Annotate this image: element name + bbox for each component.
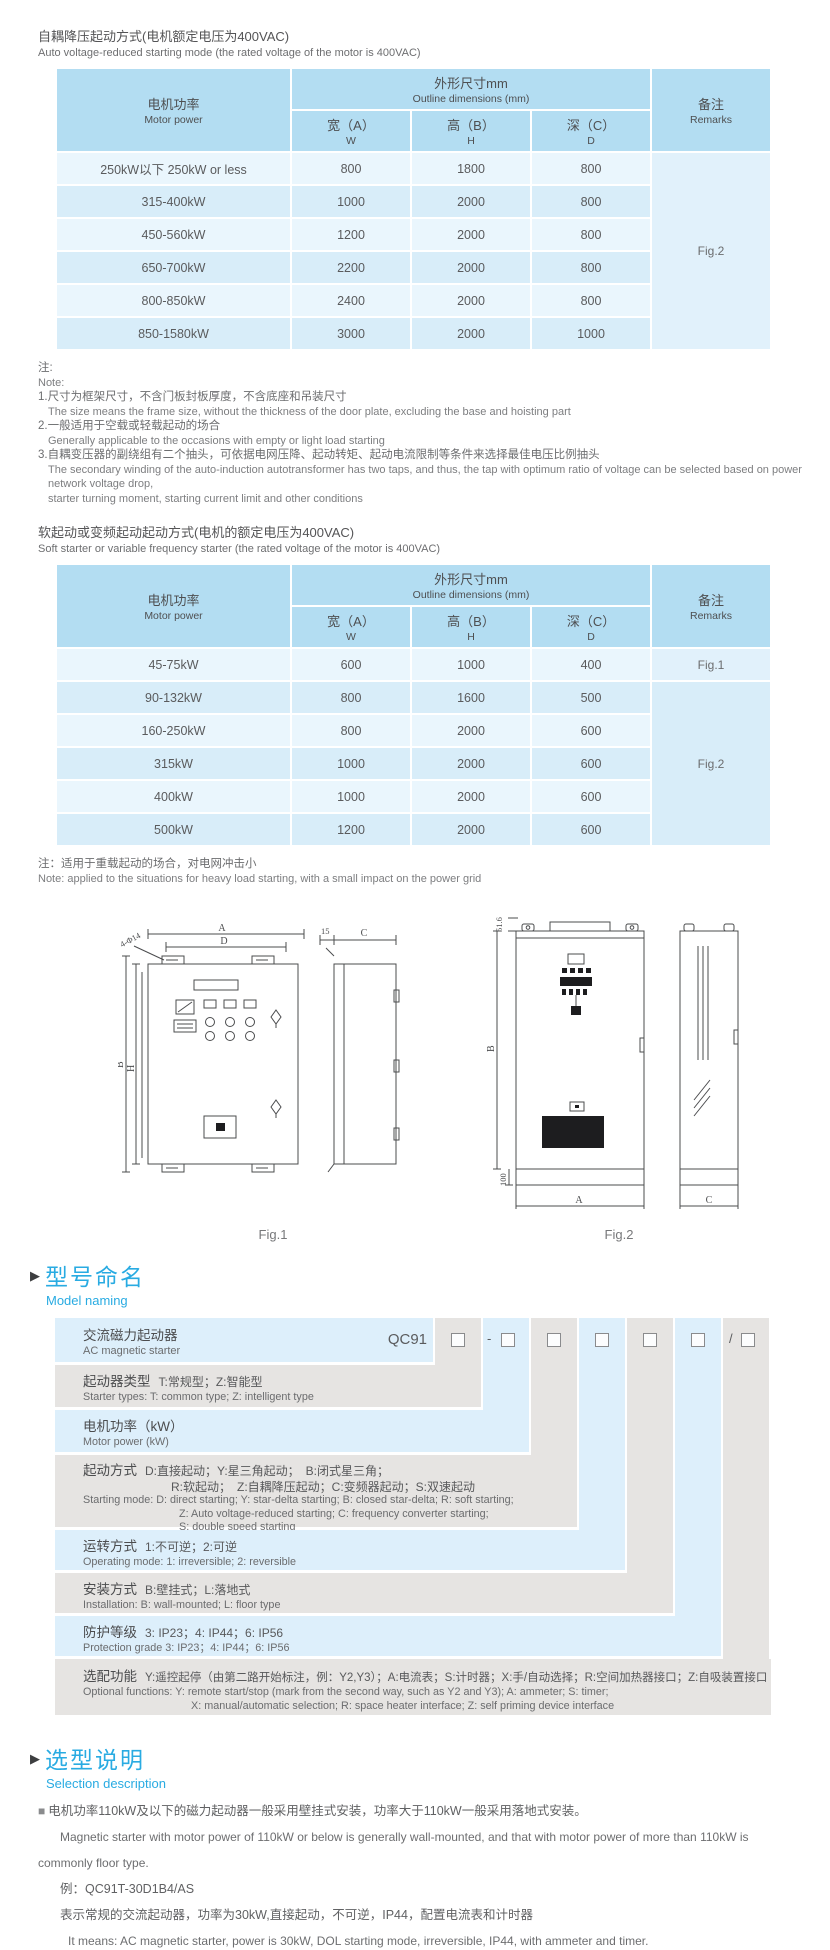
cell-w: 1200 <box>291 218 411 251</box>
cell-d: 500 <box>531 681 651 714</box>
naming-box <box>643 1333 657 1347</box>
table-header-row: 电机功率 Motor power 外形尺寸mm Outline dimensio… <box>56 68 771 110</box>
cell-d: 800 <box>531 251 651 284</box>
note-line: 2.一般适用于空载或轻载起动的场合 <box>38 419 830 434</box>
cell-power: 500kW <box>56 813 291 846</box>
cell-d: 1000 <box>531 317 651 350</box>
figure-1: A D 4-Φ14 <box>118 920 428 1242</box>
cell-d: 800 <box>531 152 651 185</box>
note-line: 注: <box>38 361 830 376</box>
fig2-drawing: 51.6 B 100 <box>484 910 754 1220</box>
header-width: 宽（A）W <box>291 606 411 648</box>
cell-d: 600 <box>531 747 651 780</box>
header-motor-power: 电机功率 Motor power <box>56 564 291 648</box>
header-outline-dimensions: 外形尺寸mm Outline dimensions (mm) <box>291 68 651 110</box>
cell-d: 400 <box>531 648 651 681</box>
section1-heading: 自耦降压起动方式(电机额定电压为400VAC) Auto voltage-red… <box>38 26 830 59</box>
cell-power: 800-850kW <box>56 284 291 317</box>
header-width: 宽（A）W <box>291 110 411 152</box>
cell-h: 2000 <box>411 185 531 218</box>
note-line: 注：适用于重载起动的场合，对电网冲击小 <box>38 857 830 872</box>
cell-power: 160-250kW <box>56 714 291 747</box>
selection-paragraph: Magnetic starter with motor power of 110… <box>38 1829 830 1846</box>
naming-box <box>547 1333 561 1347</box>
fig2-dim-100: 100 <box>498 1173 508 1186</box>
cell-w: 2200 <box>291 251 411 284</box>
cell-d: 800 <box>531 218 651 251</box>
cell-d: 800 <box>531 284 651 317</box>
fig2-label: Fig.2 <box>484 1227 754 1242</box>
cell-remark: Fig.1 <box>651 648 771 681</box>
cell-d: 600 <box>531 813 651 846</box>
fig1-dim-c: C <box>361 928 368 939</box>
catalog-page: { "colors": { "accent_blue": "#29abe2", … <box>0 0 830 1797</box>
naming-row-starting-mode: 起动方式D:直接起动；Y:星三角起动； B:闭式星三角； R:软起动； Z:自耦… <box>55 1455 577 1527</box>
header-height: 高（B）H <box>411 110 531 152</box>
naming-box <box>595 1333 609 1347</box>
fig1-dim-b: B <box>118 1061 126 1068</box>
naming-box <box>451 1333 465 1347</box>
header-depth: 深（C）D <box>531 110 651 152</box>
naming-box-prefix: - <box>487 1331 491 1346</box>
note-line: Note: <box>38 376 830 391</box>
cell-power: 250kW以下 250kW or less <box>56 152 291 185</box>
selection-paragraph: ■电机功率110kW及以下的磁力起动器一般采用壁挂式安装，功率大于110kW一般… <box>38 1803 830 1820</box>
cell-w: 1000 <box>291 747 411 780</box>
cell-h: 2000 <box>411 284 531 317</box>
cell-w: 800 <box>291 714 411 747</box>
table-row: 90-132kW 800 1600 500 Fig.2 <box>56 681 771 714</box>
cell-w: 2400 <box>291 284 411 317</box>
cell-h: 1600 <box>411 681 531 714</box>
note-line: 3.自耦变压器的副绕组有二个抽头，可依据电网压降、起动转矩、起动电流限制等条件来… <box>38 448 830 463</box>
cell-w: 1200 <box>291 813 411 846</box>
naming-row-optional-functions: 选配功能Y:遥控起停（由第二路开始标注，例：Y2,Y3）；A:电流表；S:计时器… <box>55 1659 771 1715</box>
figure-2: 51.6 B 100 <box>484 910 754 1242</box>
figures-area: A D 4-Φ14 <box>118 910 830 1242</box>
table1-notes: 注: Note: 1.尺寸为框架尺寸，不含门板封板厚度，不含底座和吊装尺寸 Th… <box>38 361 830 506</box>
cell-h: 2000 <box>411 780 531 813</box>
note-line: Note: applied to the situations for heav… <box>38 872 830 887</box>
note-line: The size means the frame size, without t… <box>38 405 830 420</box>
auto-voltage-table: 电机功率 Motor power 外形尺寸mm Outline dimensio… <box>55 67 772 351</box>
selection-body: ■电机功率110kW及以下的磁力起动器一般采用壁挂式安装，功率大于110kW一般… <box>38 1803 830 1950</box>
naming-row-protection-grade: 防护等级3: IP23；4: IP44；6: IP56 Protection g… <box>55 1616 721 1656</box>
table-header-row: 电机功率 Motor power 外形尺寸mm Outline dimensio… <box>56 564 771 606</box>
cell-w: 1000 <box>291 185 411 218</box>
cell-d: 600 <box>531 714 651 747</box>
naming-row-operating-mode: 运转方式1:不可逆；2:可逆 Operating mode: 1: irreve… <box>55 1530 625 1570</box>
section1-title-en: Auto voltage-reduced starting mode (the … <box>38 47 830 59</box>
model-code: QC91 <box>355 1318 427 1362</box>
cell-h: 2000 <box>411 747 531 780</box>
note-line: starter turning moment, starting current… <box>38 492 830 507</box>
section2-heading: 软起动或变频起动起动方式(电机的额定电压为400VAC) Soft starte… <box>38 522 830 555</box>
model-naming-heading: ▶型号命名 Model naming <box>30 1258 830 1308</box>
header-remarks: 备注 Remarks <box>651 564 771 648</box>
cell-power: 315kW <box>56 747 291 780</box>
fig1-drawing: A D 4-Φ14 <box>118 920 428 1220</box>
cell-power: 45-75kW <box>56 648 291 681</box>
note-line: Generally applicable to the occasions wi… <box>38 434 830 449</box>
model-naming-title-zh: 型号命名 <box>45 1264 145 1290</box>
cell-d: 800 <box>531 185 651 218</box>
selection-example: 例：QC91T-30D1B4/AS <box>38 1881 830 1898</box>
cell-h: 2000 <box>411 813 531 846</box>
naming-column-strip <box>723 1318 769 1715</box>
fig2-dim-a: A <box>575 1195 583 1206</box>
table-row: 45-75kW 600 1000 400 Fig.1 <box>56 648 771 681</box>
cell-power: 450-560kW <box>56 218 291 251</box>
cell-power: 850-1580kW <box>56 317 291 350</box>
header-height: 高（B）H <box>411 606 531 648</box>
header-motor-power: 电机功率 Motor power <box>56 68 291 152</box>
fig1-dim-h: H <box>126 1065 137 1072</box>
header-outline-dimensions: 外形尺寸mm Outline dimensions (mm) <box>291 564 651 606</box>
cell-h: 1000 <box>411 648 531 681</box>
fig1-label: Fig.1 <box>118 1227 428 1242</box>
cell-power: 650-700kW <box>56 251 291 284</box>
section2-title-zh: 软起动或变频起动起动方式(电机的额定电压为400VAC) <box>38 522 830 541</box>
section2-title-en: Soft starter or variable frequency start… <box>38 543 830 555</box>
selection-paragraph: It means: AC magnetic starter, power is … <box>38 1933 830 1950</box>
cell-h: 2000 <box>411 218 531 251</box>
naming-row-starter-type: 起动器类型T:常规型；Z:智能型 Starter types: T: commo… <box>55 1365 481 1407</box>
cell-remark: Fig.2 <box>651 152 771 350</box>
table2-notes: 注：适用于重载起动的场合，对电网冲击小 Note: applied to the… <box>38 857 830 886</box>
soft-starter-table: 电机功率 Motor power 外形尺寸mm Outline dimensio… <box>55 563 772 847</box>
selection-paragraph: commonly floor type. <box>38 1855 830 1872</box>
header-remarks: 备注 Remarks <box>651 68 771 152</box>
triangle-marker-icon: ▶ <box>30 1751 40 1766</box>
selection-title-en: Selection description <box>46 1776 830 1791</box>
cell-w: 3000 <box>291 317 411 350</box>
cell-power: 90-132kW <box>56 681 291 714</box>
cell-w: 600 <box>291 648 411 681</box>
selection-heading: ▶选型说明 Selection description <box>30 1741 830 1791</box>
fig1-holes-label: 4-Φ14 <box>118 930 143 949</box>
cell-w: 1000 <box>291 780 411 813</box>
fig1-dim-a: A <box>218 923 226 934</box>
cell-w: 800 <box>291 152 411 185</box>
naming-row-installation: 安装方式B:壁挂式；L:落地式 Installation: B: wall-mo… <box>55 1573 673 1613</box>
naming-box-prefix: / <box>729 1331 733 1346</box>
cell-power: 315-400kW <box>56 185 291 218</box>
note-line: The secondary winding of the auto-induct… <box>38 463 830 492</box>
table-row: 250kW以下 250kW or less 800 1800 800 Fig.2 <box>56 152 771 185</box>
naming-box <box>741 1333 755 1347</box>
triangle-marker-icon: ▶ <box>30 1268 40 1283</box>
header-depth: 深（C）D <box>531 606 651 648</box>
cell-h: 1800 <box>411 152 531 185</box>
fig2-dim-b: B <box>486 1045 497 1052</box>
cell-w: 800 <box>291 681 411 714</box>
naming-row-motor-power: 电机功率（kW） Motor power (kW) <box>55 1410 529 1452</box>
model-naming-title-en: Model naming <box>46 1293 830 1308</box>
cell-remark: Fig.2 <box>651 681 771 846</box>
selection-paragraph: 表示常规的交流起动器，功率为30kW,直接起动，不可逆，IP44，配置电流表和计… <box>38 1907 830 1924</box>
note-line: 1.尺寸为框架尺寸，不含门板封板厚度，不含底座和吊装尺寸 <box>38 390 830 405</box>
fig1-dim-d: D <box>220 936 227 947</box>
cell-power: 400kW <box>56 780 291 813</box>
selection-title-zh: 选型说明 <box>45 1747 145 1773</box>
square-bullet-icon: ■ <box>38 1804 45 1818</box>
naming-column-strip <box>627 1318 673 1613</box>
section1-title-zh: 自耦降压起动方式(电机额定电压为400VAC) <box>38 26 830 45</box>
fig2-dim-516: 51.6 <box>494 917 504 932</box>
page-content: 自耦降压起动方式(电机额定电压为400VAC) Auto voltage-red… <box>0 0 830 1950</box>
cell-h: 2000 <box>411 714 531 747</box>
naming-box <box>691 1333 705 1347</box>
fig2-dim-c: C <box>706 1195 713 1206</box>
model-naming-diagram: - / 交流磁力起动器 AC magnetic starter QC91 起动器… <box>55 1318 771 1715</box>
cell-d: 600 <box>531 780 651 813</box>
naming-box <box>501 1333 515 1347</box>
naming-column-strip <box>675 1318 721 1656</box>
cell-h: 2000 <box>411 251 531 284</box>
cell-h: 2000 <box>411 317 531 350</box>
fig1-dim-15: 15 <box>321 926 330 936</box>
